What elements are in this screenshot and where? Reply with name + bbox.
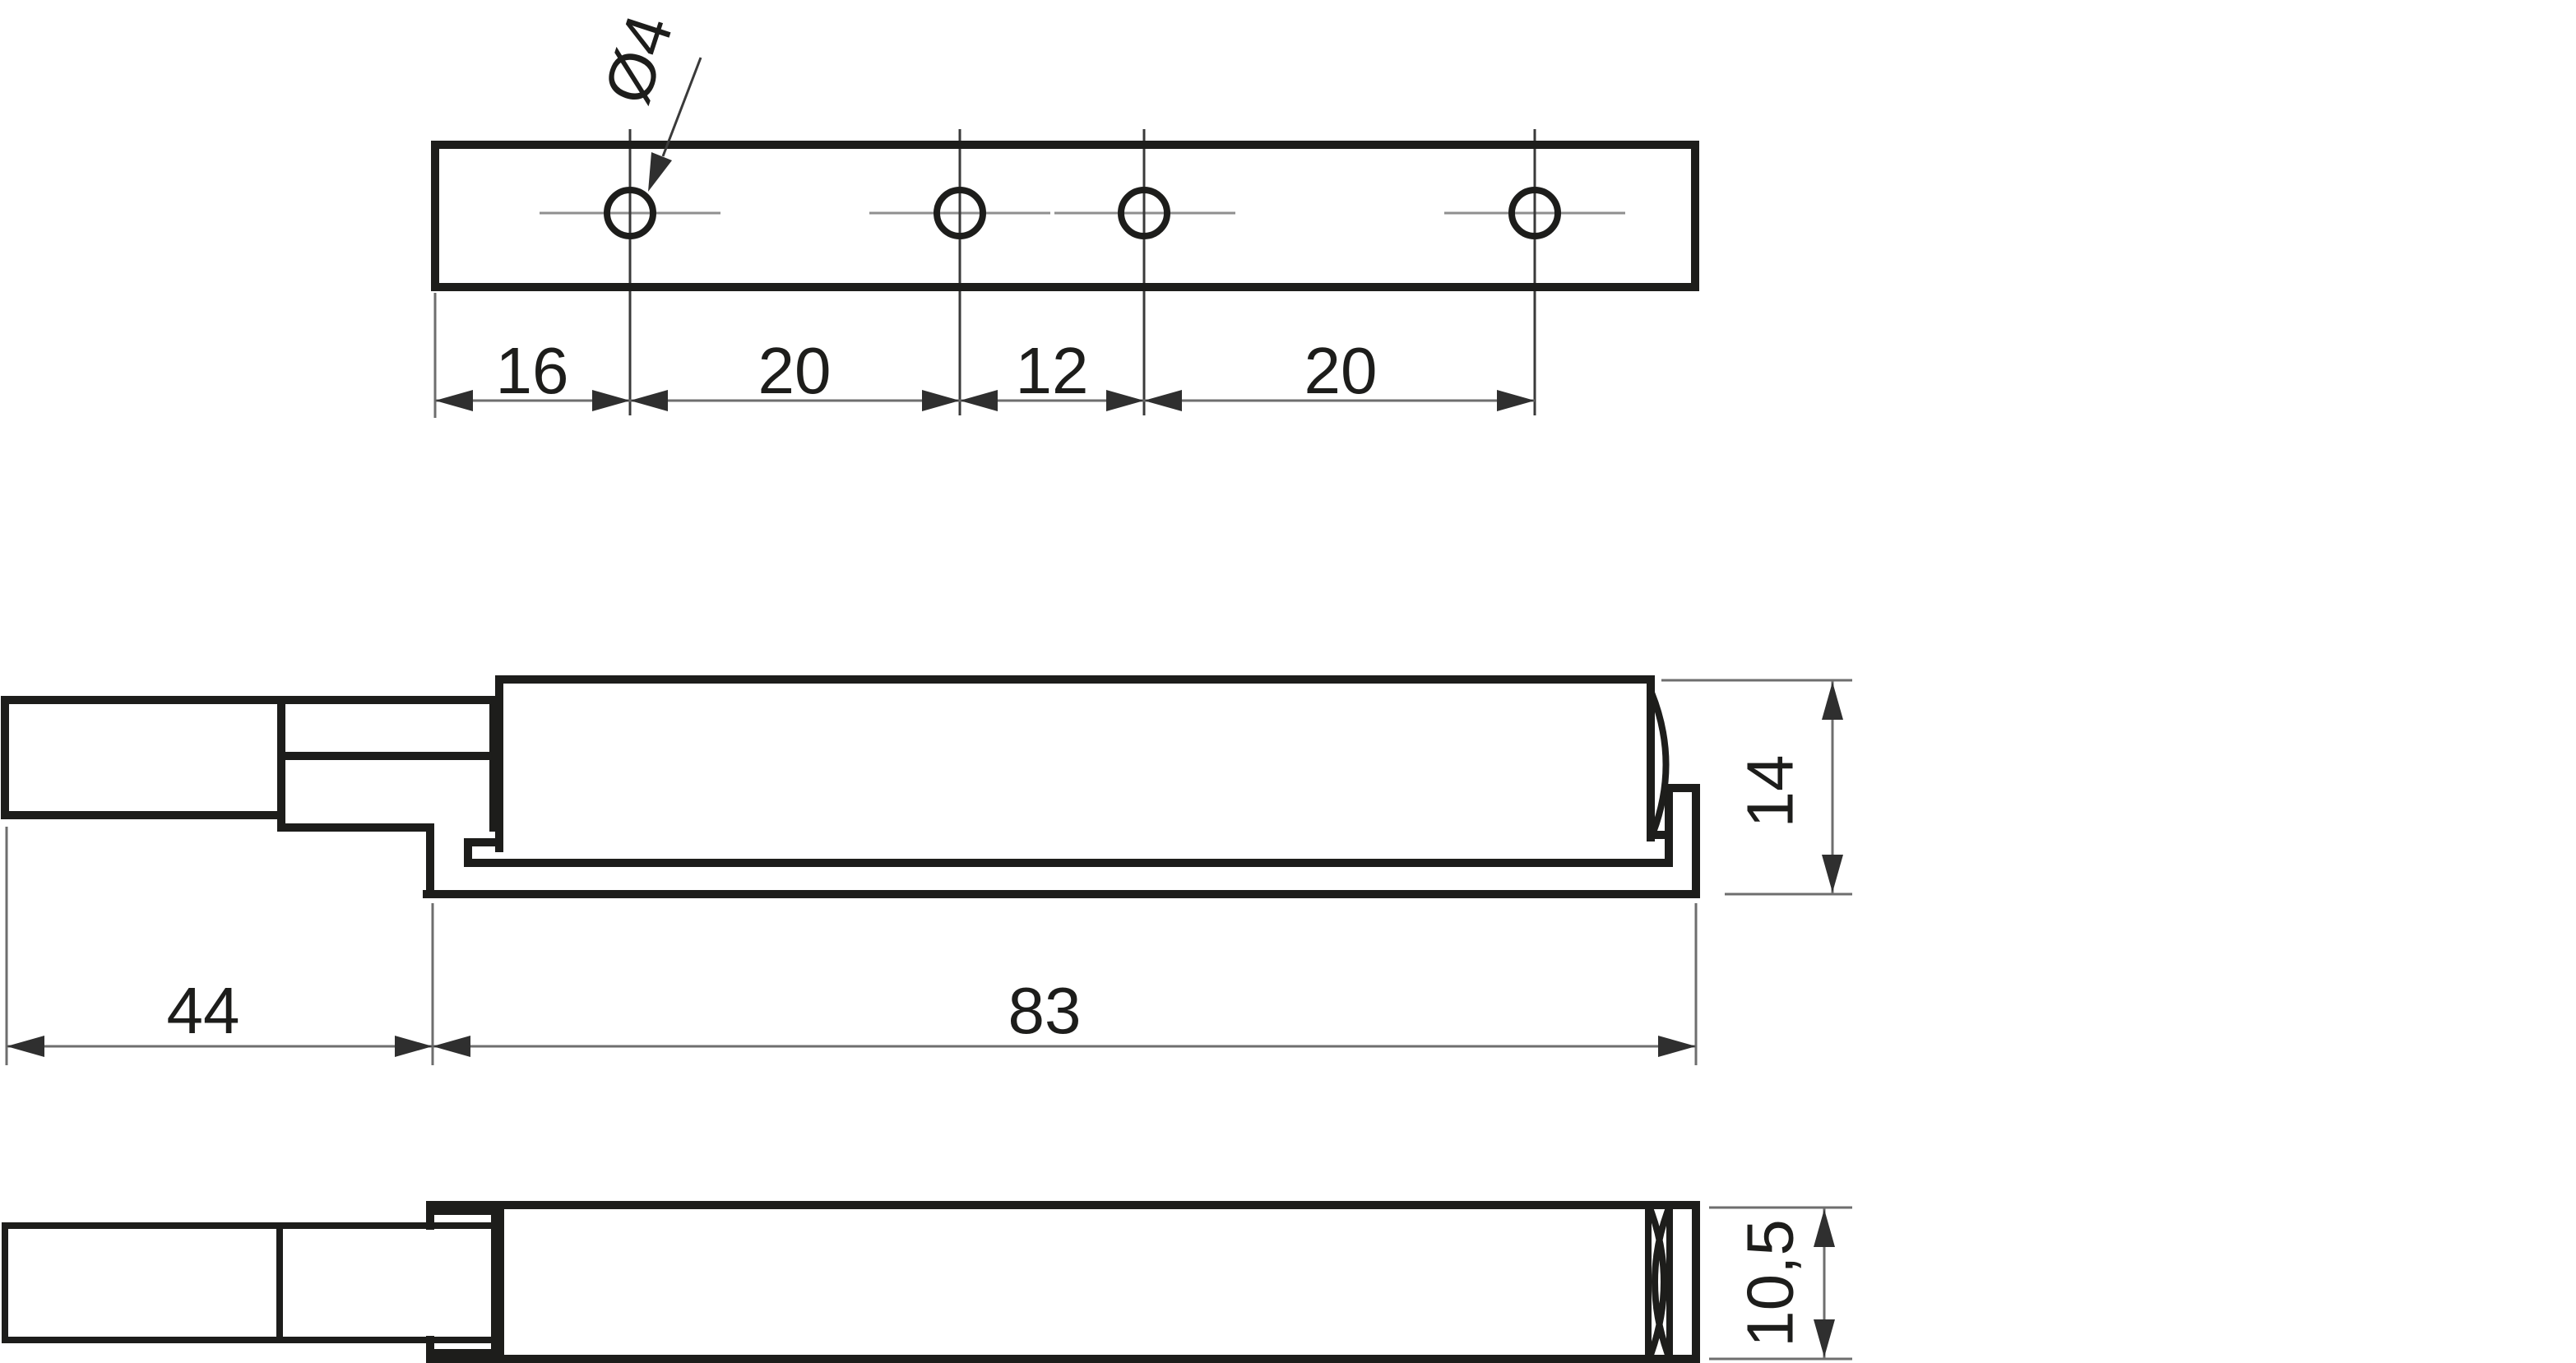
hole-diameter-label: Ø4 bbox=[590, 7, 687, 113]
housing-side-outline bbox=[427, 788, 1696, 894]
dim-16-label: 16 bbox=[496, 334, 569, 407]
dim-12-label: 12 bbox=[1016, 334, 1089, 407]
body-face-lines bbox=[494, 1205, 501, 1359]
dimension-arrow bbox=[1658, 1036, 1696, 1057]
dimension-arrow bbox=[922, 390, 960, 411]
dimension-arrow bbox=[1497, 390, 1535, 411]
diameter-leader-arrow bbox=[648, 152, 672, 192]
dimension-arrow bbox=[1822, 855, 1843, 892]
technical-drawing: Ø4 16 20 12 20 14 bbox=[0, 0, 2576, 1363]
bumper-bottom-arcs bbox=[1652, 1212, 1667, 1352]
dimension-arrow bbox=[395, 1036, 433, 1057]
dimension-arrow bbox=[433, 1036, 470, 1057]
dimension-arrow bbox=[960, 390, 998, 411]
dimension-arrow bbox=[1814, 1319, 1835, 1357]
dimension-arrow bbox=[592, 390, 630, 411]
top-view: Ø4 16 20 12 20 bbox=[435, 7, 1695, 418]
mounting-plate-outline bbox=[435, 145, 1695, 287]
drawing-canvas: Ø4 16 20 12 20 14 bbox=[0, 0, 2576, 1363]
plunger-side-outline bbox=[5, 700, 493, 828]
dimension-arrow bbox=[7, 1036, 44, 1057]
body-length-label: 83 bbox=[1008, 974, 1082, 1047]
dimension-arrow bbox=[1144, 390, 1182, 411]
dim-20a-label: 20 bbox=[758, 334, 832, 407]
plunger-length-label: 44 bbox=[167, 974, 240, 1047]
dimension-arrow bbox=[435, 390, 473, 411]
dimension-arrow bbox=[630, 390, 668, 411]
side-view: 14 44 83 bbox=[5, 679, 1852, 1065]
bottom-view: 10,5 bbox=[5, 1205, 1852, 1359]
dimension-arrow bbox=[1106, 390, 1144, 411]
housing-bottom-outline bbox=[430, 1205, 1696, 1359]
dimension-arrow bbox=[1822, 682, 1843, 720]
plunger-bottom-outline bbox=[5, 1226, 491, 1340]
bottom-height-label: 10,5 bbox=[1734, 1219, 1807, 1347]
latch-body-outline bbox=[499, 679, 1666, 848]
side-height-label: 14 bbox=[1734, 755, 1807, 828]
housing-wall-notch-lines bbox=[433, 1212, 494, 1352]
dimension-arrow bbox=[1814, 1209, 1835, 1247]
dim-20b-label: 20 bbox=[1304, 334, 1378, 407]
